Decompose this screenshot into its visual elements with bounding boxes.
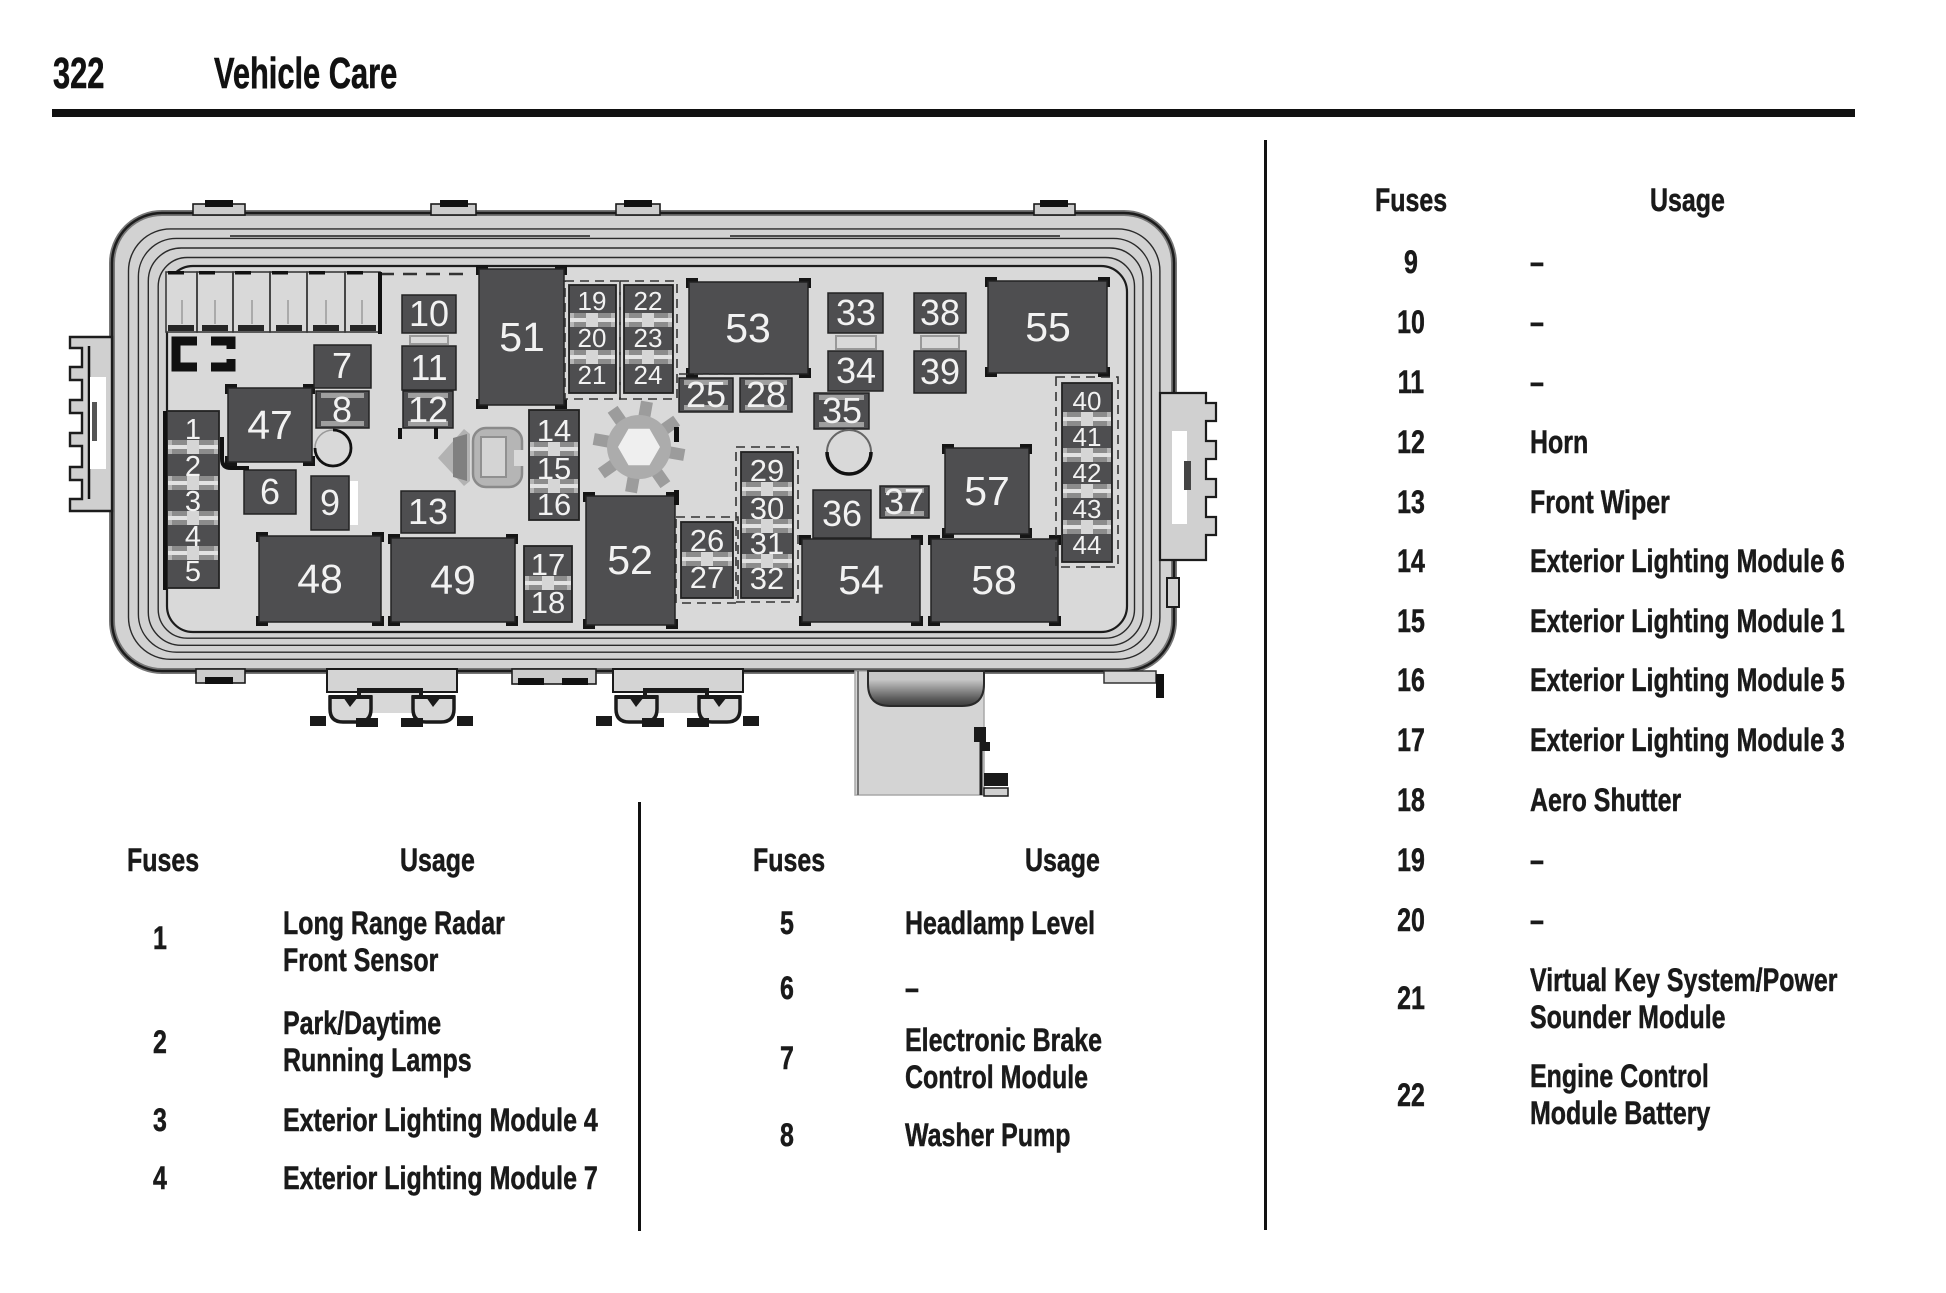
svg-text:25: 25	[686, 374, 726, 415]
svg-text:58: 58	[971, 557, 1017, 603]
svg-text:36: 36	[822, 493, 862, 534]
svg-text:37: 37	[884, 481, 924, 522]
svg-text:10: 10	[409, 293, 449, 334]
svg-text:29: 29	[750, 453, 784, 488]
svg-text:43: 43	[1073, 494, 1102, 524]
svg-text:30: 30	[750, 491, 784, 526]
svg-text:51: 51	[499, 314, 545, 360]
svg-text:23: 23	[634, 323, 663, 353]
svg-text:18: 18	[531, 585, 565, 620]
svg-text:9: 9	[320, 482, 340, 523]
svg-text:47: 47	[247, 402, 293, 448]
svg-text:44: 44	[1073, 530, 1102, 560]
svg-text:35: 35	[822, 390, 862, 431]
svg-text:2: 2	[185, 451, 201, 483]
svg-text:19: 19	[578, 286, 607, 316]
svg-text:57: 57	[964, 468, 1010, 514]
svg-text:54: 54	[838, 557, 884, 603]
svg-text:14: 14	[537, 413, 571, 448]
svg-text:28: 28	[746, 374, 786, 415]
svg-text:15: 15	[537, 451, 571, 486]
svg-text:39: 39	[920, 351, 960, 392]
svg-text:48: 48	[297, 556, 343, 602]
svg-text:13: 13	[408, 491, 448, 532]
svg-text:42: 42	[1073, 458, 1102, 488]
svg-text:32: 32	[750, 561, 784, 596]
svg-text:41: 41	[1073, 422, 1102, 452]
svg-text:31: 31	[750, 526, 784, 561]
svg-text:16: 16	[537, 487, 571, 522]
svg-text:24: 24	[634, 360, 663, 390]
svg-text:53: 53	[725, 305, 771, 351]
svg-text:34: 34	[836, 350, 876, 391]
svg-text:40: 40	[1073, 386, 1102, 416]
svg-text:8: 8	[332, 389, 352, 430]
svg-text:12: 12	[408, 389, 448, 430]
svg-text:7: 7	[332, 345, 352, 386]
svg-text:22: 22	[634, 286, 663, 316]
svg-text:3: 3	[185, 486, 201, 518]
svg-text:11: 11	[410, 347, 447, 388]
svg-text:55: 55	[1025, 304, 1071, 350]
svg-text:49: 49	[430, 557, 476, 603]
svg-text:20: 20	[578, 323, 607, 353]
svg-text:26: 26	[690, 523, 724, 558]
svg-text:17: 17	[531, 547, 565, 582]
svg-text:33: 33	[836, 292, 876, 333]
svg-text:4: 4	[185, 521, 201, 553]
svg-text:38: 38	[920, 292, 960, 333]
svg-text:5: 5	[185, 556, 201, 588]
svg-text:27: 27	[690, 560, 724, 595]
svg-text:21: 21	[578, 360, 607, 390]
svg-text:52: 52	[607, 537, 653, 583]
svg-text:1: 1	[185, 414, 201, 446]
svg-text:6: 6	[260, 471, 280, 512]
